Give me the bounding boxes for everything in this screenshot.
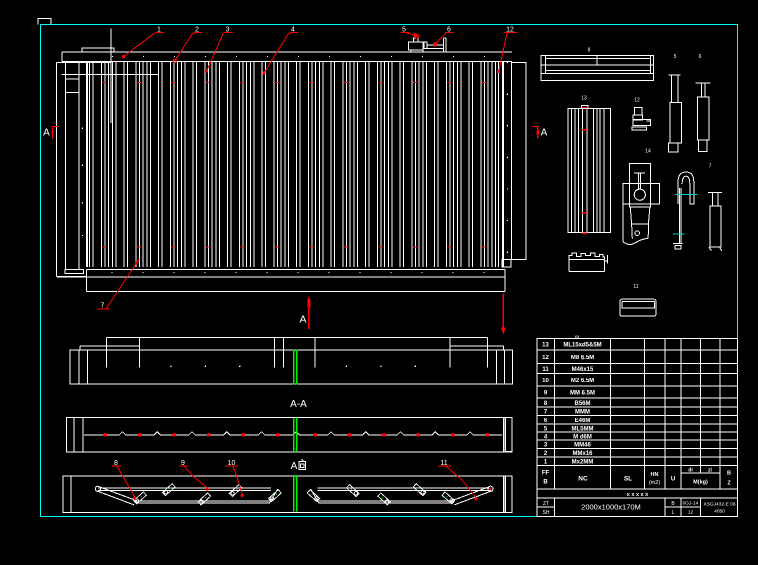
svg-text:zi: zi bbox=[708, 467, 713, 473]
svg-text:6: 6 bbox=[699, 54, 702, 60]
svg-text:L: L bbox=[672, 510, 675, 516]
svg-text:M46x15: M46x15 bbox=[572, 367, 594, 373]
svg-text:8: 8 bbox=[588, 48, 591, 54]
svg-text:11: 11 bbox=[542, 367, 549, 373]
svg-text:12: 12 bbox=[634, 98, 640, 104]
svg-text:ML5MM: ML5MM bbox=[572, 426, 594, 432]
svg-text:": " bbox=[582, 345, 584, 351]
svg-text:SH: SH bbox=[543, 510, 550, 516]
svg-text:XSGJ432-E 06: XSGJ432-E 06 bbox=[704, 502, 736, 508]
svg-text:SL: SL bbox=[624, 476, 632, 483]
svg-text:xx: xx bbox=[575, 334, 581, 340]
svg-text:14: 14 bbox=[645, 149, 651, 155]
svg-text:13: 13 bbox=[542, 343, 549, 349]
svg-text:A: A bbox=[299, 314, 306, 326]
svg-text:B: B bbox=[543, 480, 548, 486]
svg-text:B56M: B56M bbox=[574, 401, 590, 407]
svg-text:U: U bbox=[671, 477, 675, 483]
svg-text:Mx2MM: Mx2MM bbox=[572, 459, 594, 465]
svg-text:13: 13 bbox=[581, 96, 587, 102]
svg-text:": " bbox=[582, 381, 584, 387]
svg-text:MMM: MMM bbox=[575, 409, 590, 415]
svg-text:FF: FF bbox=[542, 471, 550, 477]
svg-text:5: 5 bbox=[674, 54, 677, 60]
svg-text:A: A bbox=[541, 128, 548, 139]
svg-text:x x x x x: x x x x x bbox=[627, 492, 649, 498]
svg-text:2000x1000x170M: 2000x1000x170M bbox=[581, 503, 641, 512]
svg-text:": " bbox=[582, 393, 584, 399]
svg-text:MMx16: MMx16 bbox=[572, 451, 593, 457]
svg-text:12: 12 bbox=[542, 355, 549, 361]
svg-text:B: B bbox=[727, 471, 731, 477]
svg-text:7: 7 bbox=[709, 164, 712, 170]
svg-text:HN: HN bbox=[651, 472, 659, 478]
svg-text:ZT: ZT bbox=[543, 501, 549, 507]
svg-text:0GJ-14: 0GJ-14 bbox=[683, 501, 699, 507]
svg-text:(m2): (m2) bbox=[649, 480, 660, 486]
svg-text:M d6M: M d6M bbox=[573, 434, 592, 440]
svg-text:E46M: E46M bbox=[575, 418, 591, 424]
svg-text:": " bbox=[582, 358, 584, 364]
svg-text:A: A bbox=[43, 128, 50, 139]
svg-text:11: 11 bbox=[633, 284, 638, 290]
svg-text:4050: 4050 bbox=[714, 509, 725, 515]
svg-text:M(kg): M(kg) bbox=[693, 480, 708, 486]
svg-text:A: A bbox=[291, 461, 298, 472]
svg-text:10: 10 bbox=[542, 378, 549, 384]
svg-text:12: 12 bbox=[688, 510, 694, 516]
svg-text:di: di bbox=[688, 467, 693, 473]
svg-text:NC: NC bbox=[578, 476, 588, 483]
svg-text:MM46: MM46 bbox=[574, 443, 591, 449]
svg-text:7: 7 bbox=[101, 303, 105, 310]
svg-text:A-A: A-A bbox=[290, 399, 307, 410]
